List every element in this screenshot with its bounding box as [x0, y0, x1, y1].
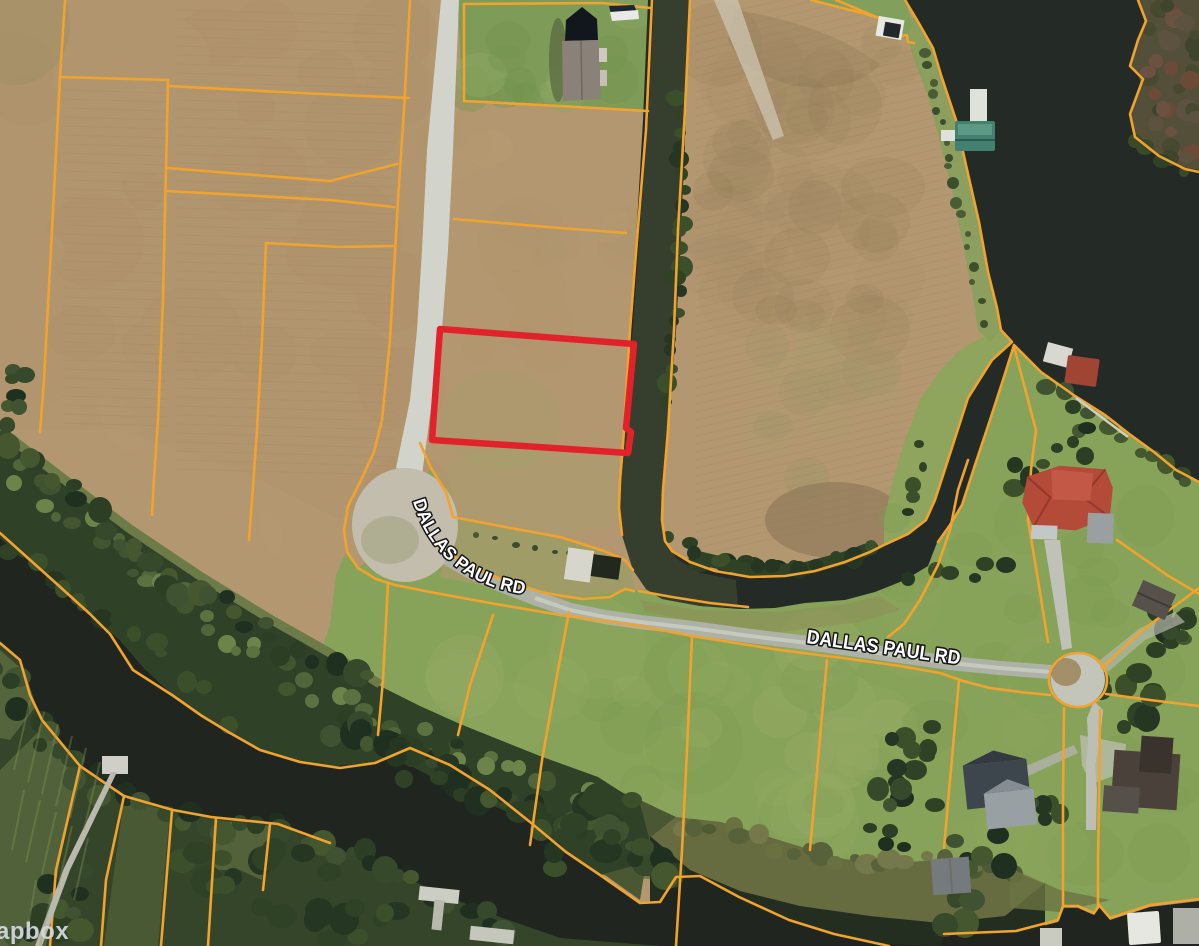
- svg-text:apbox: apbox: [0, 918, 69, 945]
